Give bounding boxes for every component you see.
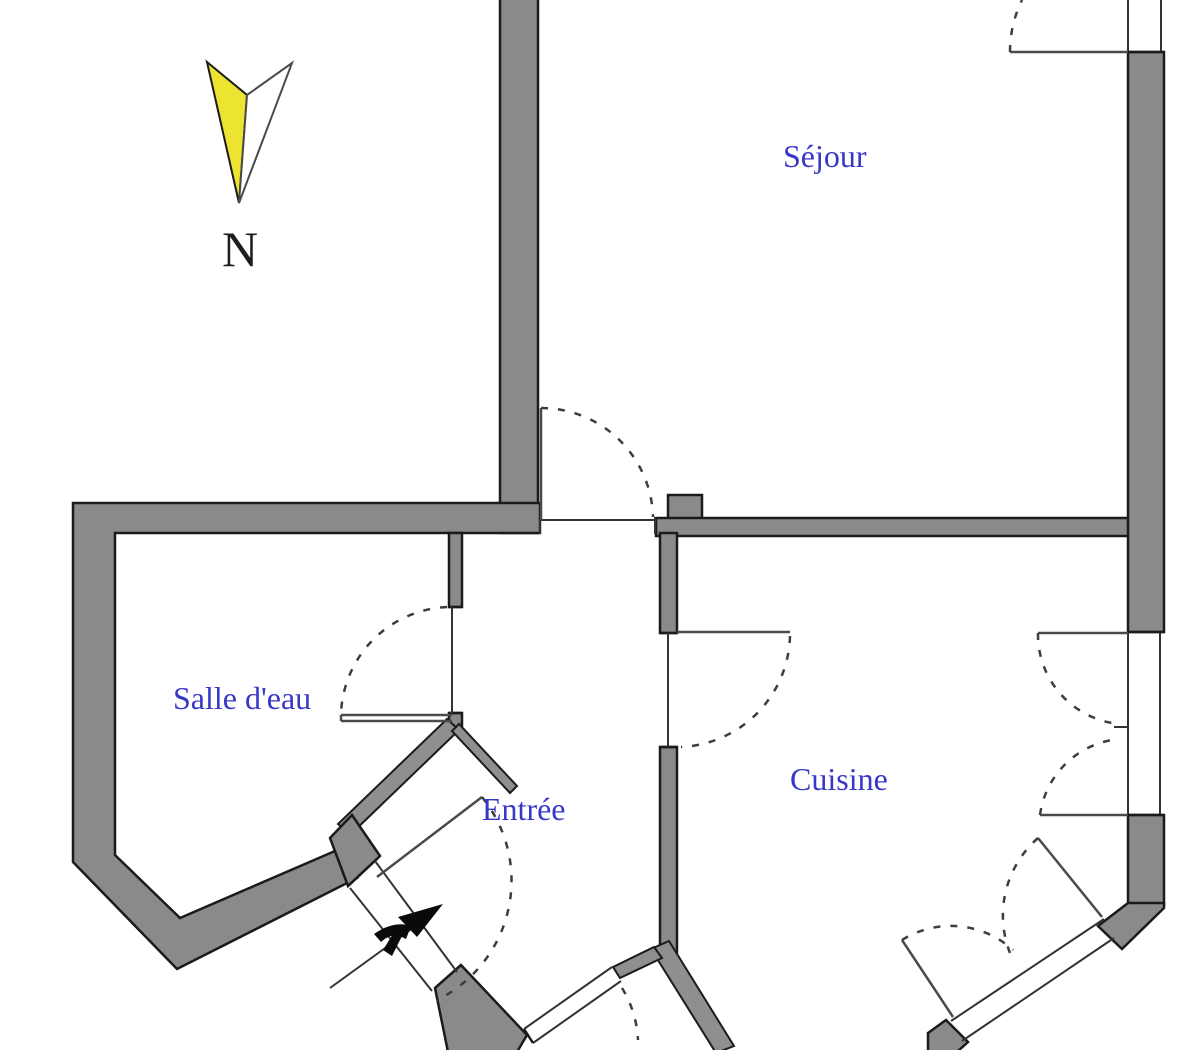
wall-sde-divider-upper (449, 533, 462, 607)
wall-entrance-lower (435, 965, 527, 1050)
north-compass: N (207, 62, 292, 277)
window-sejour-northeast (1010, 0, 1164, 52)
room-label-entree: Entrée (482, 791, 566, 827)
room-label-cuisine: Cuisine (790, 761, 888, 797)
window-sw-swing-arc (622, 988, 638, 1040)
floor-plan: N Séjour Salle d'eau Entrée Cuisine (0, 0, 1200, 1050)
compass-north-label: N (222, 221, 258, 277)
door-sejour-swing-arc (541, 408, 653, 517)
window-east-swing-top (1038, 633, 1112, 723)
window-se-swing-top (1003, 838, 1038, 953)
wall-vestibule-diagonal-right (452, 724, 517, 793)
entrance-arrow-icon (330, 904, 443, 988)
wall-east-lower (1128, 815, 1164, 905)
window-se-leaf-bottom (902, 940, 953, 1017)
wall-east-upper (1128, 52, 1164, 632)
door-sejour (540, 408, 655, 534)
wall-divider-se-diagonal (651, 941, 734, 1050)
window-ne-swing-arc (1010, 0, 1022, 52)
wall-sejour-west (500, 0, 538, 533)
window-se-swing-bottom (902, 926, 1013, 950)
compass-needle-white (239, 63, 292, 203)
wall-sejour-south (656, 518, 1130, 536)
window-east-swing-bottom (1040, 740, 1112, 815)
room-label-sejour: Séjour (783, 138, 867, 174)
room-label-salle-deau: Salle d'eau (173, 680, 311, 716)
door-cuisine (660, 632, 790, 747)
wall-cuisine-divider-lower (660, 747, 677, 952)
door-entrance-swing-arc (437, 797, 512, 1000)
wall-se-window-chunk (928, 1020, 968, 1050)
wall-cuisine-divider-upper (660, 533, 677, 633)
wall-divider-sw-stub (613, 947, 662, 978)
door-entrance-leaf (377, 797, 482, 877)
floor-plan-canvas: N Séjour Salle d'eau Entrée Cuisine (0, 0, 1200, 1050)
door-cuisine-swing-arc (681, 636, 790, 747)
door-sde-swing-arc (341, 607, 447, 714)
wall-vestibule-diagonal-left (338, 719, 459, 835)
window-southeast-casement (902, 838, 1114, 1041)
door-salle-deau (341, 607, 462, 721)
window-east-casement (1038, 632, 1164, 815)
window-se-leaf-top (1038, 838, 1102, 917)
